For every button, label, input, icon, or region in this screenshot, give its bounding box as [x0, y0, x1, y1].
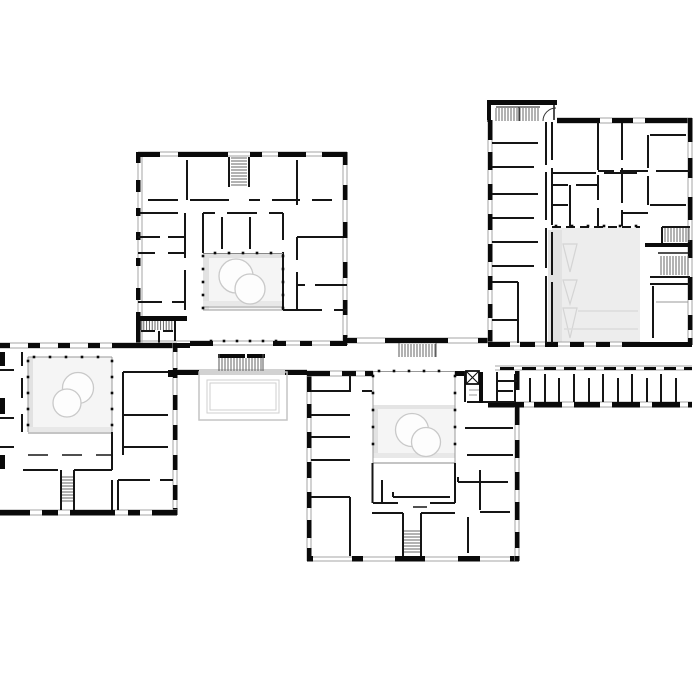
wall-segment	[488, 342, 510, 347]
wall-segment	[688, 118, 693, 142]
wall-segment	[488, 330, 493, 343]
wall-segment	[307, 462, 312, 478]
wall-segment	[0, 510, 30, 516]
block-b	[487, 100, 693, 347]
wall-segment	[136, 258, 141, 266]
wall-segment	[515, 502, 520, 520]
column-dots	[270, 252, 273, 255]
wall-segment	[343, 262, 348, 278]
column-dots	[97, 356, 100, 359]
wall-segment	[136, 152, 141, 163]
column-dots	[33, 356, 36, 359]
wall-segment	[136, 316, 187, 321]
wall-segment	[515, 556, 520, 561]
wall-segment	[652, 402, 680, 408]
wall-segment	[173, 485, 178, 500]
column-dots	[111, 376, 114, 379]
wall-segment	[570, 342, 584, 347]
wall-segment	[347, 338, 357, 343]
walkway-canopy	[177, 354, 307, 420]
wall-segment	[152, 510, 177, 516]
column-dots	[236, 340, 239, 343]
wall-segment	[688, 158, 693, 178]
column-dots	[635, 225, 638, 228]
wall-segment	[584, 367, 596, 370]
wall-segment	[173, 395, 178, 410]
column-dots	[275, 340, 278, 343]
wall-segment	[688, 315, 693, 330]
wall-segment	[307, 492, 312, 508]
courtyard-band	[373, 453, 455, 458]
block-c	[307, 370, 520, 562]
wall-segment	[624, 367, 636, 370]
column-dots	[202, 255, 205, 258]
wall-segment	[70, 510, 115, 516]
wall-segment	[395, 556, 425, 562]
column-dots	[27, 392, 30, 395]
wall-segment	[0, 343, 10, 348]
column-dots	[372, 443, 375, 446]
wall-segment	[644, 367, 656, 370]
wall-segment	[136, 180, 141, 192]
wall-segment	[173, 455, 178, 470]
wall-segment	[173, 343, 178, 352]
column-dots	[111, 424, 114, 427]
column-dots	[111, 408, 114, 411]
column-dots	[454, 426, 457, 429]
wall-segment	[190, 341, 213, 346]
column-dots	[454, 443, 457, 446]
courtyard-band	[28, 357, 33, 432]
wall-segment	[645, 243, 692, 247]
column-dots	[393, 370, 396, 373]
column-dots	[27, 408, 30, 411]
floor-plan-canvas	[0, 0, 700, 700]
wall-segment	[488, 120, 493, 140]
column-dots	[423, 370, 426, 373]
column-dots	[282, 307, 285, 310]
wall-segment	[455, 371, 465, 376]
wall-segment	[0, 352, 5, 366]
column-dots	[262, 340, 265, 343]
wall-segment	[612, 118, 633, 123]
column-dots	[202, 268, 205, 271]
tree-canopy	[53, 389, 81, 417]
wall-segment	[300, 341, 312, 346]
wall-segment	[487, 100, 557, 105]
column-dots	[223, 340, 226, 343]
wall-segment	[515, 407, 520, 425]
column-dots	[454, 409, 457, 412]
courtyard-band	[28, 427, 112, 432]
column-dots	[372, 409, 375, 412]
wall-segment	[515, 440, 520, 458]
block-d	[0, 343, 190, 516]
wall-segment	[664, 367, 676, 370]
wall-segment	[500, 367, 514, 370]
wall-segment	[688, 240, 693, 258]
wall-segment	[522, 367, 536, 370]
wall-segment	[612, 402, 640, 408]
column-dots	[27, 424, 30, 427]
wall-segment	[488, 152, 493, 170]
column-dots	[438, 370, 441, 373]
wall-segment	[557, 118, 600, 123]
wall-segment	[0, 455, 5, 469]
wall-segment	[343, 300, 348, 315]
wall-segment	[307, 556, 313, 562]
column-dots	[65, 356, 68, 359]
column-dots	[111, 392, 114, 395]
wall-segment	[330, 341, 347, 346]
column-dots	[282, 255, 285, 258]
column-dots	[587, 225, 590, 228]
wall-segment	[564, 367, 576, 370]
column-dots	[282, 294, 285, 297]
column-dots	[27, 376, 30, 379]
wall-segment	[640, 342, 692, 347]
wall-segment	[138, 152, 160, 157]
wall-segment	[278, 152, 306, 157]
column-dots	[111, 360, 114, 363]
wall-segment	[688, 197, 693, 220]
wall-segment	[385, 338, 448, 343]
column-dots	[282, 281, 285, 284]
wall-segment	[574, 402, 600, 408]
column-dots	[372, 392, 375, 395]
wall-segment	[42, 510, 58, 516]
wall-segment	[488, 304, 493, 318]
column-dots	[202, 307, 205, 310]
block-a	[136, 152, 348, 346]
tree-canopy	[235, 274, 265, 304]
column-dots	[256, 252, 259, 255]
wall-segment	[168, 370, 177, 377]
wall-segment	[488, 214, 493, 230]
floor-plan-page	[0, 0, 700, 700]
wall-segment	[307, 432, 312, 448]
column-dots	[210, 340, 213, 343]
wall-segment	[488, 184, 493, 200]
courtyard-band	[373, 409, 378, 458]
wall-segment	[352, 556, 363, 562]
column-dots	[454, 392, 457, 395]
column-dots	[214, 252, 217, 255]
column-dots	[249, 340, 252, 343]
column-dots	[202, 281, 205, 284]
wall-segment	[520, 342, 535, 347]
wall-segment	[178, 152, 228, 157]
wall-segment	[247, 354, 265, 358]
canopy-frame	[210, 383, 276, 410]
link-corridor	[347, 338, 490, 357]
courtyard-band	[373, 405, 455, 409]
wall-segment	[136, 208, 141, 216]
wall-segment	[488, 244, 493, 262]
wall-segment	[218, 354, 245, 358]
wall-segment	[88, 343, 100, 348]
wall-segment	[0, 398, 5, 414]
wall-segment	[688, 277, 693, 300]
wall-segment	[128, 510, 140, 516]
wall-segment	[544, 367, 556, 370]
column-dots	[571, 225, 574, 228]
column-dots	[202, 294, 205, 297]
column-dots	[454, 375, 457, 378]
wall-segment	[307, 371, 330, 376]
wall-segment	[307, 404, 312, 418]
wall-segment	[604, 367, 616, 370]
wall-segment	[487, 100, 491, 122]
wall-segment	[285, 370, 307, 375]
column-dots	[27, 360, 30, 363]
wall-segment	[177, 370, 199, 375]
wall-segment	[684, 367, 692, 370]
column-dots	[228, 252, 231, 255]
tree-canopy	[412, 428, 441, 457]
wall-segment	[458, 556, 480, 562]
wall-segment	[307, 520, 312, 538]
wall-segment	[645, 118, 692, 123]
wall-segment	[250, 152, 262, 157]
column-dots	[372, 426, 375, 429]
wall-segment	[488, 276, 493, 290]
wall-segment	[622, 342, 640, 347]
wall-segment	[596, 342, 610, 347]
wall-segment	[534, 402, 562, 408]
column-dots	[619, 225, 622, 228]
column-dots	[282, 268, 285, 271]
wall-segment	[343, 152, 348, 165]
column-dots	[378, 370, 381, 373]
wall-segment	[343, 222, 348, 238]
wall-segment	[515, 532, 520, 548]
wall-segment	[136, 288, 141, 300]
column-dots	[49, 356, 52, 359]
column-dots	[603, 225, 606, 228]
canopy-frame	[207, 380, 279, 413]
column-dots	[408, 370, 411, 373]
wall-segment	[112, 343, 190, 348]
hall-floor	[552, 228, 640, 342]
hall-strip	[548, 230, 562, 342]
wall-segment	[479, 372, 483, 403]
wall-segment	[343, 185, 348, 200]
wall-segment	[688, 402, 692, 408]
column-dots	[81, 356, 84, 359]
column-dots	[242, 252, 245, 255]
column-dots	[372, 375, 375, 378]
wall-segment	[58, 343, 70, 348]
wall-segment	[173, 425, 178, 440]
column-dots	[555, 225, 558, 228]
wall-segment	[28, 343, 40, 348]
wall-segment	[515, 472, 520, 490]
